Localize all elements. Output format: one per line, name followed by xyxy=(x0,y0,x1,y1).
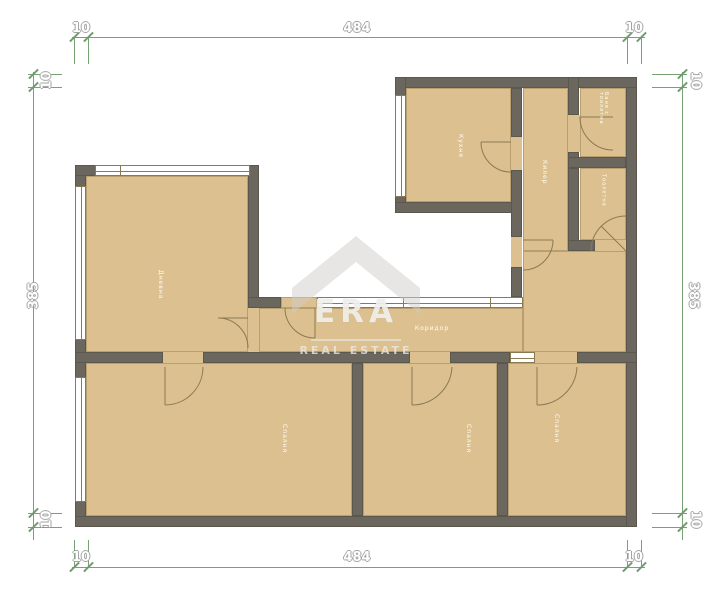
room-living-label: Дневна xyxy=(154,255,166,315)
room-bedroom-left-label: Спалня xyxy=(278,412,290,466)
room-bathroom-label: Баня с тоалетна xyxy=(597,92,609,150)
room-closet-label: Килер xyxy=(538,147,550,197)
room-kitchen-label: Кухня xyxy=(454,121,466,171)
room-corridor-label: Коридор xyxy=(402,326,462,332)
room-bedroom-middle-label: Спалня xyxy=(462,414,474,464)
room-toilet-label: Тоалетна xyxy=(597,165,609,215)
floor-plan-canvas: 10 484 10 10 484 10 10 385 10 10 385 10 xyxy=(0,0,715,600)
door-arcs xyxy=(0,0,715,600)
room-bedroom-right-label: Спалня xyxy=(550,404,562,454)
